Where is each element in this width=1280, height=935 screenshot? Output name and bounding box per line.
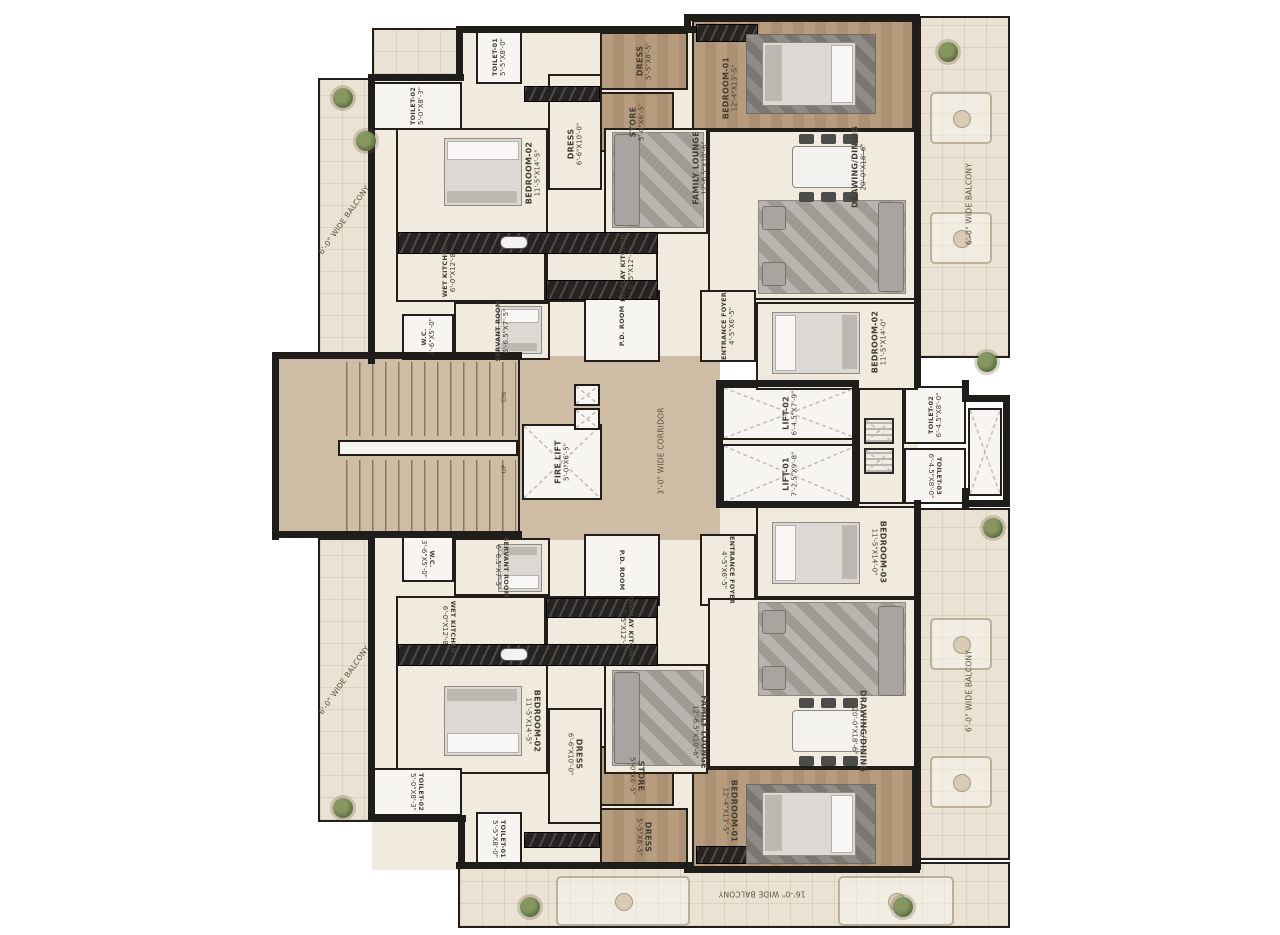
wall-segment-11 <box>914 500 921 870</box>
wall-segment-6 <box>368 74 375 364</box>
room-toilet-02-top-left <box>372 82 462 130</box>
room-balcony-left-bottom <box>318 538 370 822</box>
tr-furniture-34 <box>346 362 516 436</box>
wall-segment-17 <box>716 380 723 508</box>
counter-furniture-4 <box>546 598 658 618</box>
room-toilet-01-top <box>476 30 522 84</box>
wall-segment-12 <box>368 815 466 822</box>
room-entrance-foyer-top <box>700 290 756 362</box>
wall-segment-16 <box>684 866 920 873</box>
bed-foot <box>765 45 782 101</box>
room-toilet-02-bottom-left <box>372 768 462 816</box>
wall-segment-7 <box>272 352 522 359</box>
bed-foot <box>842 525 857 579</box>
room-corridor <box>602 362 720 540</box>
room-lift-01 <box>722 444 858 504</box>
room-balcony-left-top <box>318 78 370 362</box>
room-lift-lobby <box>858 386 904 504</box>
bed-furniture-17 <box>772 522 860 584</box>
patio-furniture-41 <box>930 92 992 144</box>
sofa-furniture-27 <box>614 672 640 764</box>
sink-furniture-2 <box>500 236 528 249</box>
sofa-furniture-23 <box>878 202 904 292</box>
room-lift-02 <box>722 386 858 440</box>
plant-7 <box>977 352 997 372</box>
wall-segment-18 <box>852 380 859 508</box>
tbl-furniture-32 <box>792 146 864 188</box>
room-duct-right <box>968 408 1002 496</box>
bed-furniture-16 <box>772 312 860 374</box>
bed-foot <box>447 191 517 203</box>
floor-plan: 6'-0" WIDE BALCONY6'-0" WIDE BALCONY6'-0… <box>0 0 1280 935</box>
xb-furniture-38 <box>574 408 600 430</box>
patio-furniture-44 <box>930 756 992 808</box>
lift-cross-mark <box>724 446 856 502</box>
bed-pillow <box>501 575 539 589</box>
bed-foot <box>842 315 857 369</box>
plant-1 <box>356 131 376 151</box>
room-fire-lift <box>522 424 602 500</box>
room-dress-bottom <box>548 708 602 824</box>
wall-segment-2 <box>456 26 463 81</box>
tbl-furniture-33 <box>792 710 864 752</box>
duct-furniture-39 <box>864 418 894 444</box>
lift-cross-mark <box>724 388 856 438</box>
dining-chair <box>843 192 858 202</box>
room-wc-bottom <box>402 536 454 582</box>
plant-6 <box>520 897 540 917</box>
dining-chair <box>821 756 836 766</box>
patio-furniture-45 <box>556 876 690 926</box>
bed-furniture-15 <box>444 686 522 756</box>
bed-foot <box>501 343 537 351</box>
lift-cross-mark <box>524 426 600 498</box>
bed-pillow <box>447 141 519 160</box>
dining-chair <box>799 192 814 202</box>
wall-segment-5 <box>914 18 921 388</box>
plant-0 <box>333 88 353 108</box>
bed-pillow <box>447 733 519 753</box>
wall-segment-4 <box>684 14 691 28</box>
plant-2 <box>333 798 353 818</box>
room-toilet-01-bottom <box>476 812 522 866</box>
plant-3 <box>938 42 958 62</box>
sofa-furniture-25 <box>762 262 786 286</box>
room-pd-room-top <box>584 290 660 362</box>
counter-furniture-3 <box>398 644 658 666</box>
dining-chair <box>821 192 836 202</box>
bed-foot <box>447 689 517 701</box>
room-toilet-03-right <box>904 448 966 504</box>
sofa-furniture-30 <box>762 610 786 634</box>
bed-foot <box>765 795 782 851</box>
lift-cross-mark <box>970 410 1000 494</box>
bed-furniture-19 <box>498 544 542 592</box>
dining-chair <box>843 698 858 708</box>
counter-furniture-0 <box>398 232 658 254</box>
lift-cross-mark <box>576 410 598 428</box>
bed-furniture-18 <box>498 306 542 354</box>
bed-pillow <box>831 45 853 103</box>
bed-pillow <box>501 309 539 323</box>
lift-cross-mark <box>866 420 892 442</box>
wall-segment-10 <box>368 536 375 822</box>
sofa-furniture-31 <box>762 666 786 690</box>
plant-4 <box>983 518 1003 538</box>
bed-foot <box>501 547 537 555</box>
dining-chair <box>821 698 836 708</box>
counter-furniture-6 <box>524 86 600 102</box>
room-terrace-right-top <box>918 16 1010 358</box>
wall-segment-19 <box>718 380 859 387</box>
plant-5 <box>893 897 913 917</box>
dining-chair <box>799 756 814 766</box>
room-entrance-foyer-bottom <box>700 534 756 606</box>
tr-furniture-36 <box>346 460 516 534</box>
dining-chair <box>843 756 858 766</box>
bed-pillow <box>831 795 853 853</box>
patio-furniture-42 <box>930 212 992 264</box>
bed-pillow <box>775 315 796 371</box>
wall-segment-14 <box>456 862 692 869</box>
dining-chair <box>799 134 814 144</box>
sofa-furniture-21 <box>614 134 640 226</box>
wall-segment-1 <box>456 26 696 33</box>
wall-segment-20 <box>718 501 859 508</box>
sofa-furniture-29 <box>878 606 904 696</box>
wall-segment-9 <box>272 531 522 538</box>
dining-chair <box>843 134 858 144</box>
patio-furniture-43 <box>930 618 992 670</box>
bed-furniture-11 <box>762 42 856 106</box>
sofa-furniture-24 <box>762 206 786 230</box>
room-dress-brown-top <box>600 32 688 90</box>
room-balcony-top-left-mini <box>372 28 460 76</box>
wall-segment-8 <box>272 352 279 540</box>
wall-segment-13 <box>458 815 465 869</box>
counter-furniture-1 <box>546 280 658 300</box>
wall-segment-25 <box>1003 395 1010 507</box>
wall-segment-3 <box>684 14 920 21</box>
lift-cross-mark <box>866 450 892 472</box>
wall-segment-0 <box>368 74 464 81</box>
bed-furniture-14 <box>444 138 522 206</box>
bed-pillow <box>775 525 796 581</box>
duct-furniture-40 <box>864 448 894 474</box>
sink-furniture-5 <box>500 648 528 661</box>
hw-furniture-35 <box>338 440 518 456</box>
counter-furniture-7 <box>524 832 600 848</box>
dining-chair <box>799 698 814 708</box>
dining-chair <box>821 134 836 144</box>
xb-furniture-37 <box>574 384 600 406</box>
room-toilet-02-right <box>904 386 966 444</box>
room-dress-brown-bottom <box>600 808 688 866</box>
bed-furniture-13 <box>762 792 856 856</box>
lift-cross-mark <box>576 386 598 404</box>
